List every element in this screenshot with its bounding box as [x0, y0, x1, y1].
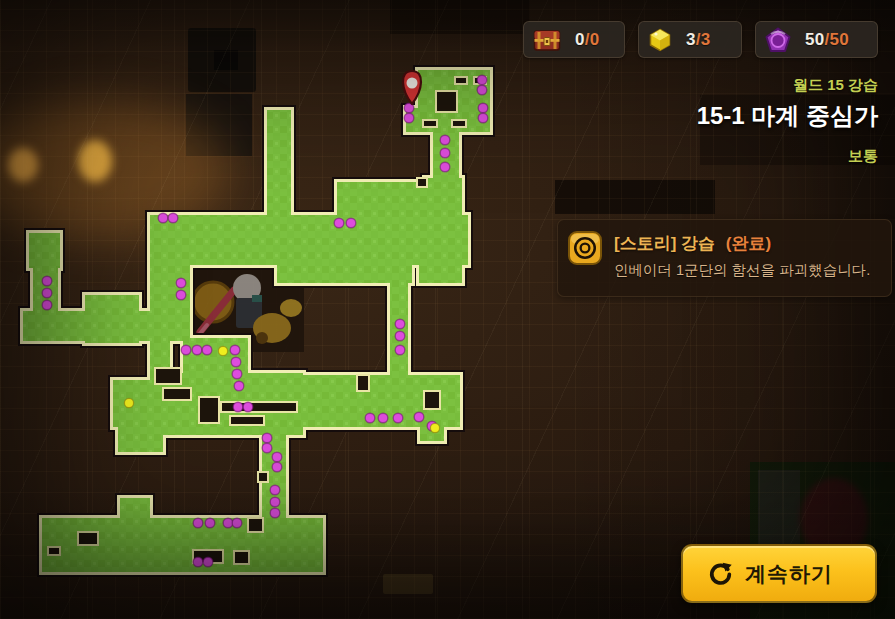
difficulty-badge: 보통	[848, 147, 878, 166]
quest-title: [스토리] 강습 (완료)	[614, 232, 771, 255]
chest-icon	[533, 28, 561, 52]
quest-toast: [스토리] 강습 (완료) 인베이더 1군단의 함선을 파괴했습니다.	[557, 219, 892, 297]
gem-yellow-icon	[648, 28, 672, 52]
world-label: 월드 15 강습	[793, 76, 878, 95]
quest-status: (완료)	[726, 234, 771, 253]
quest-category: [스토리] 강습	[614, 234, 715, 253]
gem-yellow-count: 3/3	[686, 30, 711, 50]
quest-description: 인베이더 1군단의 함선을 파괴했습니다.	[614, 261, 870, 280]
continue-button[interactable]: 계속하기	[681, 544, 877, 603]
vignette-overlay	[0, 0, 895, 619]
gem-purple-counter: 50/50	[755, 21, 878, 58]
restart-icon	[707, 561, 733, 587]
chest-counter: 0/0	[523, 21, 625, 58]
target-rings-icon	[568, 231, 602, 269]
game-screen: 0/0 3/3 50/50	[0, 0, 895, 619]
resource-counters: 0/0 3/3 50/50	[523, 21, 878, 58]
gem-yellow-counter: 3/3	[638, 21, 742, 58]
chest-count: 0/0	[575, 30, 600, 50]
continue-button-label: 계속하기	[733, 560, 845, 588]
gem-purple-count: 50/50	[805, 30, 849, 50]
stage-title: 15-1 마계 중심가	[697, 100, 878, 132]
gem-purple-icon	[765, 27, 791, 53]
